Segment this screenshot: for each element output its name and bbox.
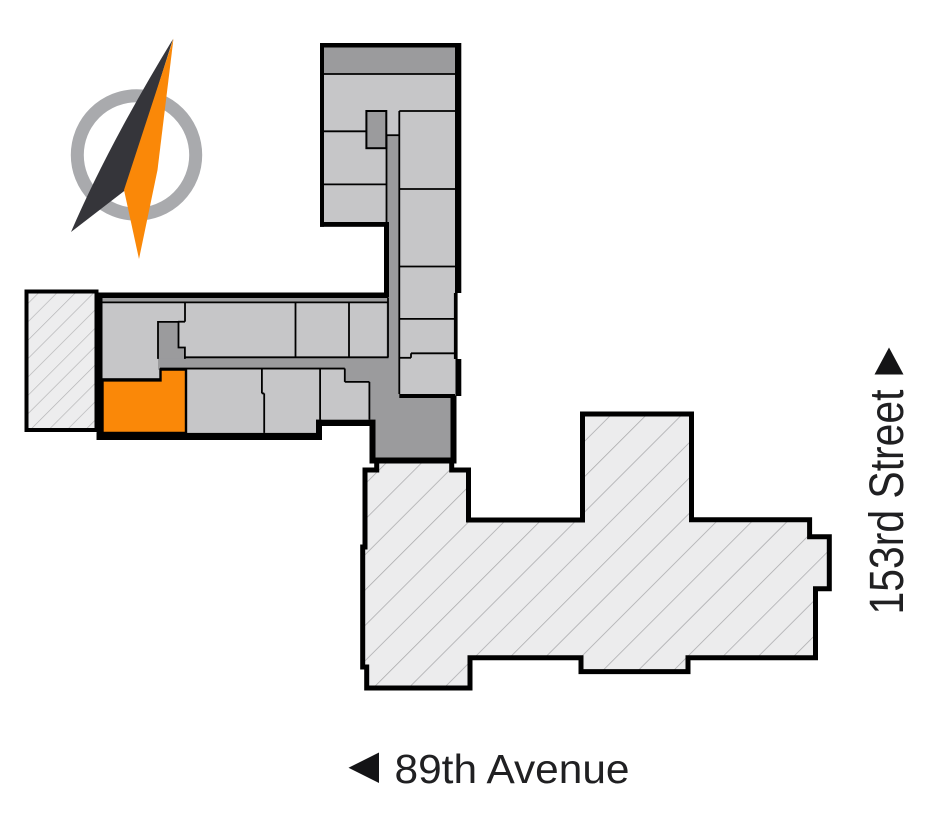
svg-text:89th Avenue: 89th Avenue bbox=[395, 746, 630, 792]
svg-text:153rd Street: 153rd Street bbox=[861, 390, 914, 615]
